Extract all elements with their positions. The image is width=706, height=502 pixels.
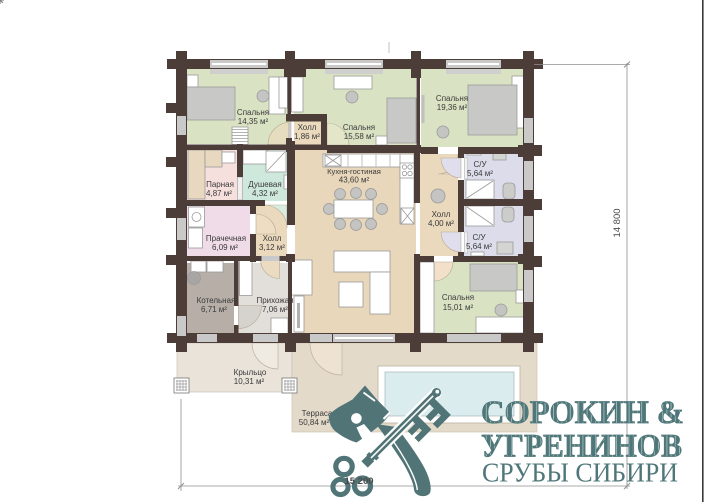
- svg-text:Котельная: Котельная: [197, 296, 236, 305]
- svg-text:Спальня: Спальня: [343, 123, 375, 132]
- svg-text:Холл: Холл: [298, 123, 317, 132]
- svg-text:Прихожая: Прихожая: [256, 296, 293, 305]
- svg-text:5,64 м²: 5,64 м²: [467, 169, 493, 178]
- svg-text:1,86 м²: 1,86 м²: [294, 132, 320, 141]
- svg-text:Холл: Холл: [432, 210, 451, 219]
- svg-text:Спальня: Спальня: [237, 108, 269, 117]
- svg-text:Холл: Холл: [263, 234, 282, 243]
- svg-text:6,09 м²: 6,09 м²: [212, 243, 238, 252]
- svg-text:15,01 м²: 15,01 м²: [443, 303, 474, 312]
- svg-text:СОРОКИН &: СОРОКИН &: [481, 395, 684, 431]
- svg-text:Прачечная: Прачечная: [206, 234, 246, 243]
- svg-text:С/У: С/У: [473, 160, 487, 169]
- svg-text:Спальня: Спальня: [436, 94, 468, 103]
- svg-text:15,58 м²: 15,58 м²: [344, 132, 375, 141]
- svg-text:3,12 м²: 3,12 м²: [259, 243, 285, 252]
- svg-text:14,35 м²: 14,35 м²: [238, 117, 269, 126]
- svg-text:4,32 м²: 4,32 м²: [252, 189, 278, 198]
- svg-text:50,84 м²: 50,84 м²: [299, 418, 330, 427]
- svg-text:5,64 м²: 5,64 м²: [466, 242, 492, 251]
- svg-text:43,60 м²: 43,60 м²: [339, 176, 370, 185]
- svg-text:4,00 м²: 4,00 м²: [428, 219, 454, 228]
- svg-text:Терраса: Терраса: [302, 409, 333, 418]
- svg-text:СРУБЫ СИБИРИ: СРУБЫ СИБИРИ: [482, 457, 678, 488]
- svg-text:14 800: 14 800: [612, 208, 623, 237]
- svg-text:Крыльцо: Крыльцо: [234, 368, 267, 377]
- svg-text:Парная: Парная: [206, 180, 234, 189]
- svg-text:4,87 м²: 4,87 м²: [206, 189, 232, 198]
- svg-text:Спальня: Спальня: [442, 293, 474, 302]
- svg-text:10,31 м²: 10,31 м²: [234, 377, 265, 386]
- svg-text:6,71 м²: 6,71 м²: [201, 305, 227, 314]
- svg-text:Душевая: Душевая: [248, 180, 281, 189]
- svg-text:С/У: С/У: [472, 233, 486, 242]
- svg-text:19,36 м²: 19,36 м²: [437, 103, 468, 112]
- svg-text:7,06 м²: 7,06 м²: [262, 305, 288, 314]
- svg-text:15 200: 15 200: [344, 476, 373, 487]
